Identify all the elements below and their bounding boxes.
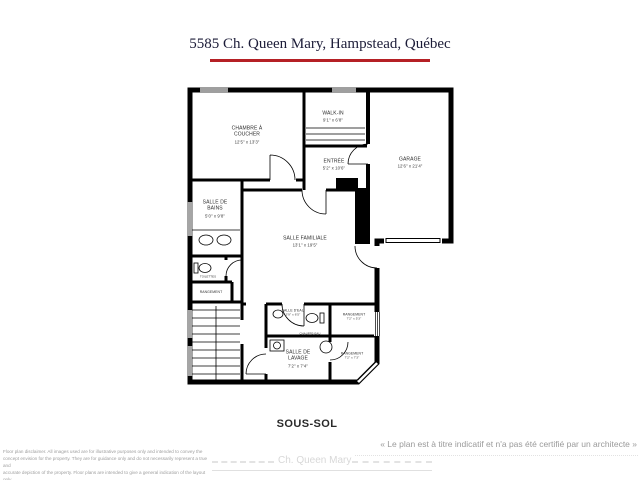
garage-door-icon — [384, 237, 442, 245]
floor-label: SOUS-SOL — [257, 418, 357, 430]
certification-note: « Le plan est à titre indicatif et n'a p… — [380, 439, 637, 449]
room-label-familiale: SALLE FAMILIALE 13'1" x 19'5" — [265, 236, 345, 249]
page-title: 5585 Ch. Queen Mary, Hampstead, Québec — [0, 36, 640, 53]
map-road-edge — [212, 470, 432, 471]
room-label-salle-eau: SALLE D'EAU 3'9" x 6'5" — [273, 309, 313, 318]
map-road-dash — [212, 461, 274, 463]
map-road-label: Ch. Queen Mary — [278, 455, 351, 466]
room-label-lavage: SALLE DE LAVAGE 7'2" x 7'4" — [281, 350, 315, 369]
disclaimer-line: concept envision for the property. They … — [3, 455, 208, 469]
room-label-rangement-mid: RANGEMENT 7'2" x 5'3" — [332, 313, 376, 322]
room-label-bains: SALLE DE BAINS 5'0" x 9'8" — [200, 200, 230, 219]
wall-mass-entry — [336, 178, 358, 190]
room-label-entree: ENTRÉE 5'2" x 10'6" — [309, 159, 359, 172]
room-label-chambre: CHAMBRE À COUCHER 12'5" x 13'3" — [224, 126, 270, 145]
label-chauffe-eau: CHAUFFE-EAU — [293, 332, 327, 335]
disclaimer-text: Floor plan disclaimer. All images used a… — [3, 448, 208, 480]
door-opening — [373, 246, 381, 268]
map-road-dash — [352, 461, 432, 463]
title-underline — [210, 59, 430, 62]
room-label-toilettes: TOILETTES — [192, 275, 224, 278]
room-label-rangement-br: RANGEMENT 7'2" x 7'3" — [331, 352, 373, 361]
floor-plan: CHAMBRE À COUCHER 12'5" x 13'3" WALK-IN … — [186, 84, 458, 396]
disclaimer-line: accurate depiction of the property. Floo… — [3, 469, 208, 480]
disclaimer-line: Floor plan disclaimer. All images used a… — [3, 448, 208, 455]
floorplan-page: 5585 Ch. Queen Mary, Hampstead, Québec — [0, 0, 640, 480]
room-label-walkin: WALK-IN 9'1" x 6'8" — [308, 111, 358, 124]
room-label-rangement-hall: RANGEMENT — [190, 290, 232, 294]
room-label-garage: GARAGE 12'6" x 21'4" — [383, 157, 437, 170]
map-road-line — [355, 455, 638, 456]
